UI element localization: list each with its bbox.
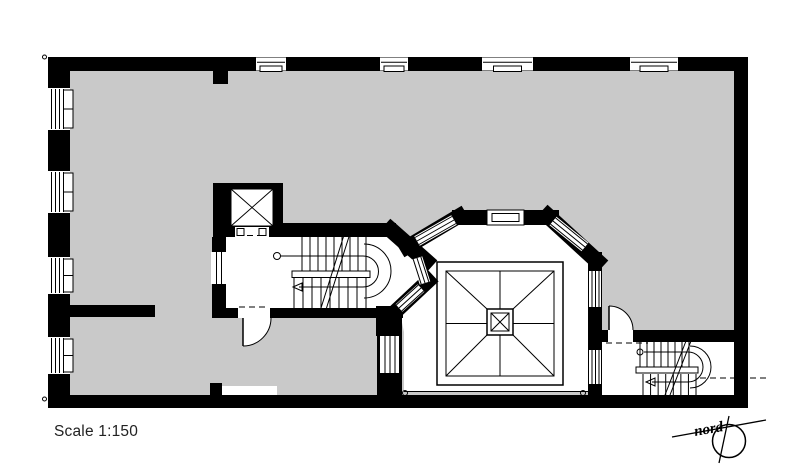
bottom-wall-stub (210, 383, 222, 397)
bay-window-right-lower-icon (589, 350, 601, 384)
top-wall-window-icon (380, 58, 408, 72)
bay-window-right-upper-icon (589, 271, 601, 307)
right-exterior-wall (734, 57, 748, 407)
stair-landing-rail (636, 367, 698, 373)
bottom-wall-niche (222, 386, 277, 396)
stairwell-left-opening-icon (211, 252, 226, 284)
top-wall-window-icon (482, 58, 533, 72)
elevator (231, 189, 273, 237)
floor-plan-page: nord Scale 1:150 (0, 0, 802, 472)
atrium-left-window-icon (380, 336, 399, 373)
se-stairwell-top-wall-left (602, 330, 608, 342)
left-wall-window-icon (48, 257, 73, 294)
se-stairwell-top-wall-right (633, 330, 748, 342)
scale-label: Scale 1:150 (54, 423, 138, 441)
left-wall-window-icon (48, 88, 73, 130)
survey-marks (43, 55, 47, 401)
bay-window-top-icon (487, 210, 524, 225)
top-wall-window-icon (630, 58, 678, 72)
stairwell-bottom-wall-left (226, 308, 238, 318)
interior-partition-wall (70, 305, 155, 317)
left-wall-window-icon (48, 337, 73, 374)
top-wall-window-icon (256, 58, 286, 72)
north-arrow: nord (672, 416, 766, 463)
north-label: nord (693, 419, 725, 440)
floor-plan-drawing: nord (0, 0, 802, 472)
top-wall-stub (213, 57, 228, 84)
left-wall-window-icon (48, 171, 73, 213)
